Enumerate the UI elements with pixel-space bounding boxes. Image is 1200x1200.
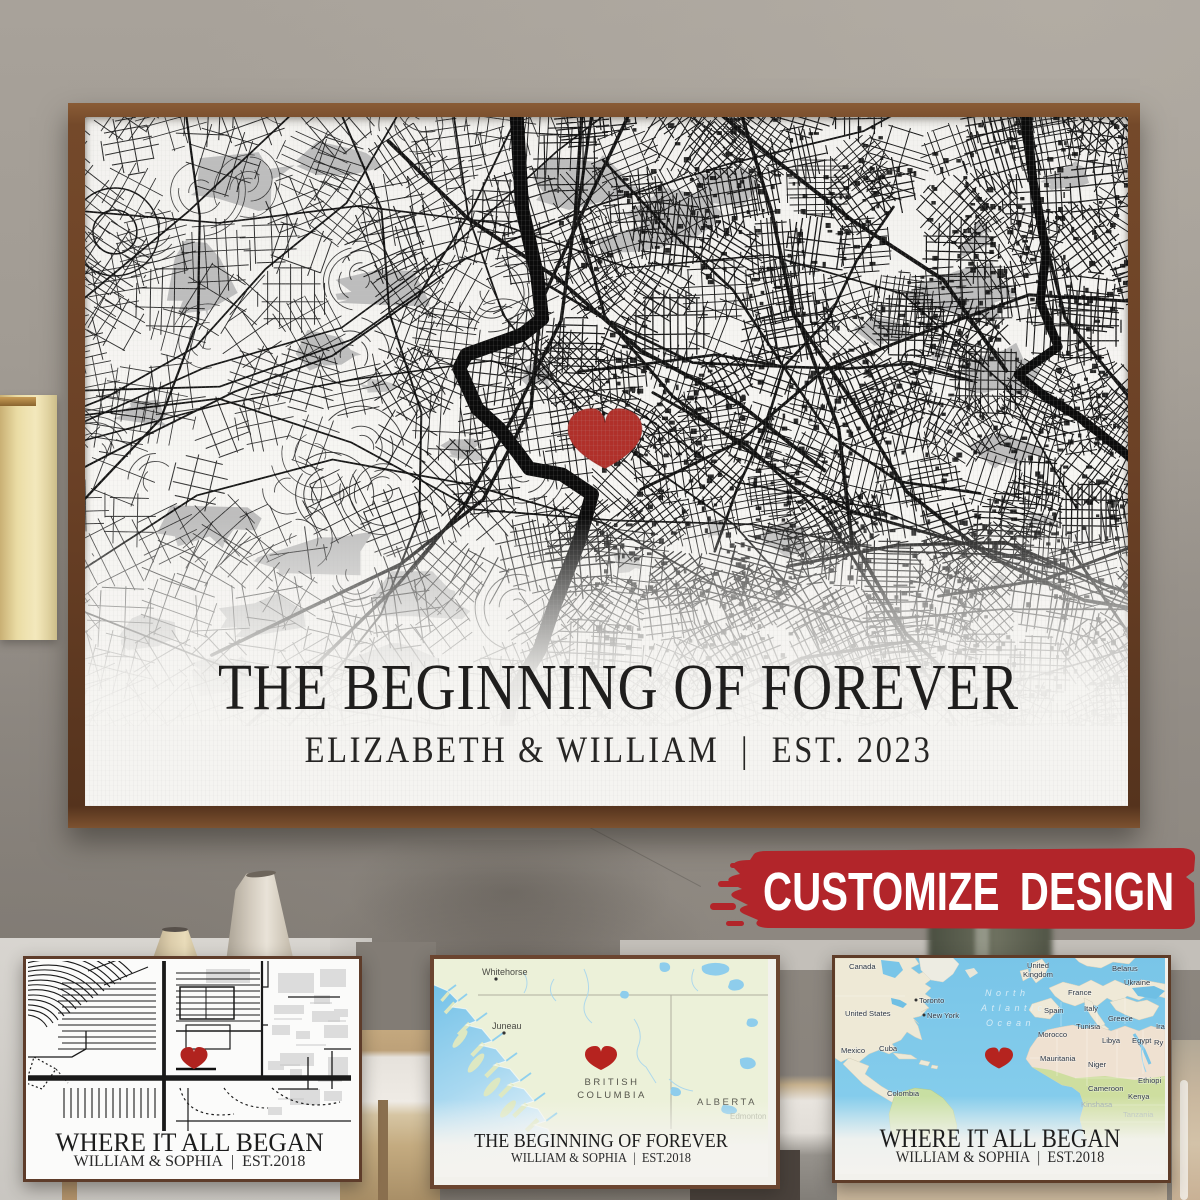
svg-text:Mexico: Mexico	[841, 1046, 865, 1055]
svg-text:Canada: Canada	[849, 962, 876, 971]
svg-text:Ry: Ry	[1154, 1038, 1163, 1047]
svg-text:Ocean: Ocean	[986, 1018, 1035, 1028]
svg-text:Ira: Ira	[1156, 1022, 1165, 1031]
svg-text:Whitehorse: Whitehorse	[482, 967, 528, 977]
svg-text:Juneau: Juneau	[492, 1021, 522, 1031]
svg-text:Mauritania: Mauritania	[1040, 1054, 1076, 1063]
svg-text:Spain: Spain	[1044, 1006, 1063, 1015]
svg-text:Ukraine: Ukraine	[1124, 978, 1150, 987]
svg-text:Tunisia: Tunisia	[1076, 1022, 1101, 1031]
svg-text:Libya: Libya	[1102, 1036, 1121, 1045]
svg-text:North: North	[985, 988, 1030, 998]
svg-text:United States: United States	[845, 1009, 891, 1018]
svg-text:Egypt: Egypt	[1132, 1036, 1152, 1045]
svg-text:New York: New York	[927, 1011, 959, 1020]
svg-text:Ethiopi: Ethiopi	[1138, 1076, 1162, 1085]
svg-text:France: France	[1068, 988, 1092, 997]
svg-text:Cuba: Cuba	[879, 1044, 898, 1053]
svg-text:Italy: Italy	[1084, 1004, 1098, 1013]
svg-text:Belarus: Belarus	[1112, 964, 1138, 973]
svg-text:United: United	[1027, 961, 1049, 970]
svg-text:Cameroon: Cameroon	[1088, 1084, 1123, 1093]
svg-text:Niger: Niger	[1088, 1060, 1107, 1069]
svg-text:BRITISH: BRITISH	[585, 1077, 640, 1088]
svg-text:Kingdom: Kingdom	[1023, 970, 1053, 979]
svg-text:Atlantic: Atlantic	[980, 1003, 1047, 1013]
svg-text:Morocco: Morocco	[1038, 1030, 1067, 1039]
svg-text:Toronto: Toronto	[919, 996, 944, 1005]
svg-text:Greece: Greece	[1108, 1014, 1133, 1023]
